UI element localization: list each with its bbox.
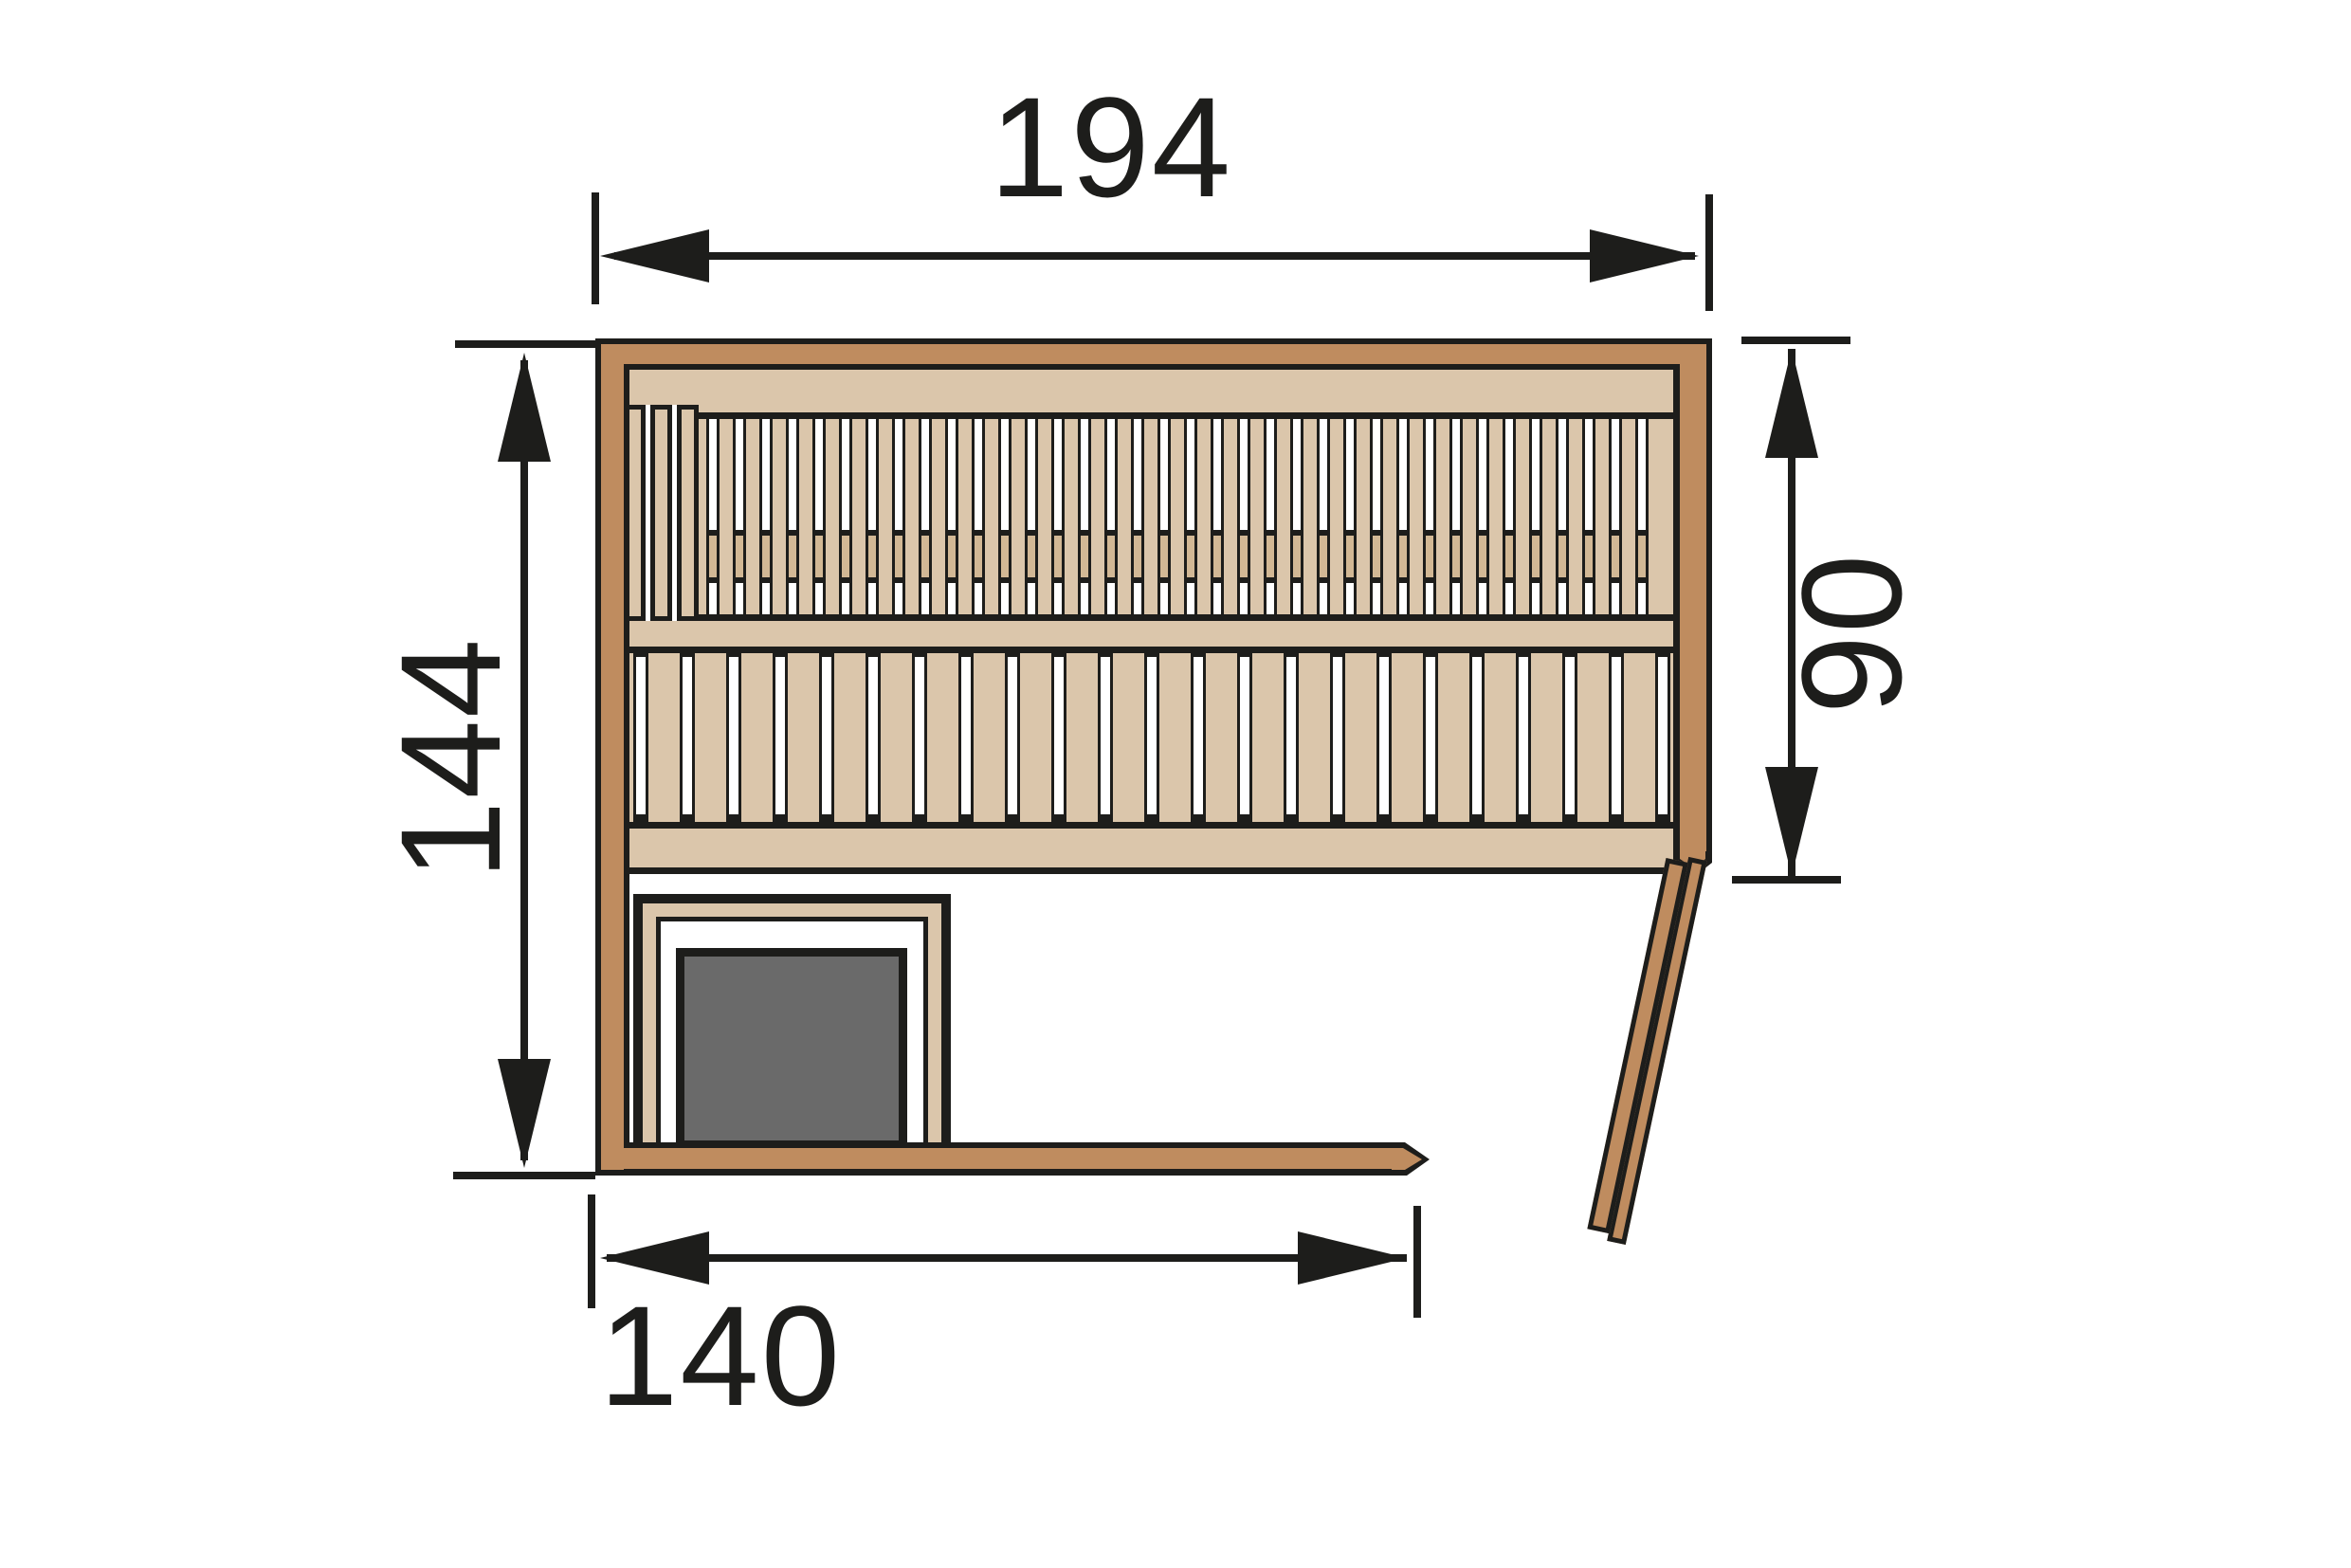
- upper-slat-slot: [1449, 419, 1463, 614]
- slot-support: [1160, 530, 1168, 583]
- slot-gap: [842, 419, 849, 614]
- slot-support: [975, 530, 982, 583]
- dim-arrow-down: [498, 1059, 551, 1168]
- slot-gap: [1452, 419, 1460, 614]
- slot-gap: [775, 657, 785, 814]
- lower-slat-slot: [1516, 653, 1531, 822]
- bench-board: [650, 405, 672, 621]
- slot-gap: [1134, 419, 1141, 614]
- slot-gap: [1346, 419, 1354, 614]
- upper-slat-slot: [812, 419, 826, 614]
- slot-support: [1479, 530, 1486, 583]
- lower-slat-slot: [866, 653, 881, 822]
- upper-slat-slot: [1343, 419, 1357, 614]
- lower-slat-slot: [958, 653, 974, 822]
- slot-support: [1028, 530, 1035, 583]
- slot-support: [1107, 530, 1115, 583]
- upper-slat-slot: [1423, 419, 1436, 614]
- slot-support: [1240, 530, 1248, 583]
- slot-support: [868, 530, 876, 583]
- slot-gap: [1565, 657, 1575, 814]
- slot-gap: [1054, 419, 1062, 614]
- upper-slat-slot: [1503, 419, 1516, 614]
- slot-support: [1452, 530, 1460, 583]
- slot-support: [1373, 530, 1380, 583]
- slot-gap: [1293, 419, 1301, 614]
- dim-label-top: 194: [969, 66, 1253, 228]
- slot-gap: [895, 419, 902, 614]
- lower-slat-slot: [1051, 653, 1066, 822]
- upper-slat-slot: [1370, 419, 1383, 614]
- bench-board: [677, 405, 699, 621]
- slot-gap: [1160, 419, 1168, 614]
- lower-slat-slot: [1609, 653, 1624, 822]
- dim-arrow-right: [1298, 1231, 1407, 1285]
- slot-support: [1426, 530, 1433, 583]
- slot-gap: [1426, 657, 1435, 814]
- slot-support: [921, 530, 929, 583]
- slot-gap: [1558, 419, 1566, 614]
- lower-slat-slot: [1423, 653, 1438, 822]
- lower-slat-slot: [1469, 653, 1485, 822]
- slot-gap: [1612, 657, 1621, 814]
- slot-gap: [1426, 419, 1433, 614]
- slot-gap: [1001, 419, 1009, 614]
- bench-front-rail: [611, 829, 1673, 867]
- lower-slat-slot: [633, 653, 648, 822]
- upper-slat-slot: [1104, 419, 1118, 614]
- slot-gap: [1147, 657, 1157, 814]
- dim-ext-line: [455, 340, 597, 348]
- lower-slat-slot: [680, 653, 695, 822]
- slot-gap: [729, 657, 738, 814]
- lower-slat-slot: [773, 653, 788, 822]
- slot-support: [1081, 530, 1088, 583]
- lower-slat-slot: [1005, 653, 1020, 822]
- lower-slat-slot: [1655, 653, 1670, 822]
- slot-gap: [736, 419, 743, 614]
- slot-support: [1399, 530, 1407, 583]
- slot-gap: [822, 657, 831, 814]
- dim-arrow-up: [498, 353, 551, 462]
- dim-ext-line: [592, 192, 599, 304]
- bench-line: [611, 867, 1673, 874]
- slot-support: [948, 530, 956, 583]
- dim-ext-line: [1705, 194, 1713, 311]
- slot-support: [1187, 530, 1194, 583]
- slot-gap: [1101, 657, 1110, 814]
- slot-gap: [1008, 657, 1017, 814]
- slot-support: [1320, 530, 1327, 583]
- upper-slat-slot: [998, 419, 1011, 614]
- upper-slat-slot: [1635, 419, 1649, 614]
- bench-top-rail: [611, 370, 1673, 412]
- lower-slat-slot: [912, 653, 927, 822]
- bench-mid-rail: [611, 621, 1673, 647]
- slot-gap: [1519, 657, 1528, 814]
- slot-gap: [1585, 419, 1593, 614]
- lower-slat-slot: [819, 653, 834, 822]
- slot-gap: [1379, 657, 1389, 814]
- dim-ext-line: [1741, 337, 1850, 344]
- dim-line-bottom: [607, 1254, 1407, 1262]
- bench-line: [611, 614, 1673, 621]
- slot-gap: [1320, 419, 1327, 614]
- slot-gap: [815, 419, 823, 614]
- dim-ext-line: [1732, 876, 1841, 884]
- dim-line-top: [614, 252, 1695, 260]
- lower-slat-slot: [1191, 653, 1206, 822]
- slot-support: [842, 530, 849, 583]
- left-wall-wood: [601, 344, 624, 1170]
- upper-slat-slot: [892, 419, 905, 614]
- slot-support: [1267, 530, 1274, 583]
- upper-slat-slot: [972, 419, 985, 614]
- upper-slat-slot: [945, 419, 958, 614]
- slot-gap: [1187, 419, 1194, 614]
- dim-ext-line: [1413, 1206, 1421, 1318]
- slot-gap: [921, 419, 929, 614]
- slot-gap: [789, 419, 796, 614]
- upper-slat-slot: [1237, 419, 1250, 614]
- slot-support: [1532, 530, 1540, 583]
- lower-slat-slot: [1237, 653, 1252, 822]
- slot-gap: [1479, 419, 1486, 614]
- dim-label-bottom: 140: [578, 1275, 863, 1436]
- upper-slat-slot: [1609, 419, 1622, 614]
- upper-slat-slot: [919, 419, 932, 614]
- slot-gap: [1054, 657, 1064, 814]
- slot-gap: [636, 657, 646, 814]
- bench-line: [611, 822, 1673, 829]
- upper-slat-slot: [1317, 419, 1330, 614]
- slot-gap: [1333, 657, 1342, 814]
- upper-slat-slot: [1025, 419, 1038, 614]
- slot-support: [1505, 530, 1513, 583]
- sauna-floor-plan: 194 144 90 140: [0, 0, 2351, 1568]
- slot-support: [1346, 530, 1354, 583]
- slot-support: [762, 530, 770, 583]
- slot-gap: [1658, 657, 1668, 814]
- slot-support: [1213, 530, 1221, 583]
- lower-slat-slot: [1330, 653, 1345, 822]
- upper-slat-slot: [1051, 419, 1065, 614]
- top-wall-wood: [601, 344, 1706, 364]
- upper-slat-slot: [1184, 419, 1197, 614]
- upper-slat-slot: [1264, 419, 1277, 614]
- slot-gap: [1240, 657, 1249, 814]
- heater: [684, 957, 899, 1140]
- slot-gap: [1638, 419, 1646, 614]
- dim-arrow-right: [1590, 229, 1699, 283]
- slot-gap: [709, 419, 717, 614]
- lower-slat-slot: [726, 653, 741, 822]
- upper-slat-slot: [1211, 419, 1224, 614]
- bench-line: [611, 647, 1673, 653]
- slot-gap: [1194, 657, 1203, 814]
- lower-slat-slot: [1144, 653, 1159, 822]
- slot-support: [1054, 530, 1062, 583]
- slot-gap: [868, 657, 878, 814]
- lower-slat-slot: [1562, 653, 1577, 822]
- slot-support: [1293, 530, 1301, 583]
- dim-label-right: 90: [1771, 524, 1932, 742]
- dim-arrow-up: [1765, 349, 1818, 458]
- upper-slat-slot: [1476, 419, 1489, 614]
- slot-gap: [762, 419, 770, 614]
- slot-support: [815, 530, 823, 583]
- slot-gap: [1286, 657, 1296, 814]
- slot-gap: [1532, 419, 1540, 614]
- slot-gap: [1373, 419, 1380, 614]
- slot-support: [1558, 530, 1566, 583]
- upper-slat-slot: [759, 419, 773, 614]
- slot-support: [1585, 530, 1593, 583]
- slot-gap: [1107, 419, 1115, 614]
- slot-support: [1001, 530, 1009, 583]
- slot-support: [789, 530, 796, 583]
- lower-slat-slot: [1376, 653, 1392, 822]
- slot-gap: [1081, 419, 1088, 614]
- upper-slat-slot: [866, 419, 879, 614]
- slot-gap: [915, 657, 924, 814]
- slot-gap: [1399, 419, 1407, 614]
- slot-gap: [1612, 419, 1619, 614]
- dim-ext-line: [453, 1172, 595, 1179]
- slot-gap: [868, 419, 876, 614]
- upper-slat-slot: [1078, 419, 1091, 614]
- dim-arrow-down: [1765, 767, 1818, 876]
- lower-slat-slot: [1284, 653, 1299, 822]
- upper-slat-slot: [1396, 419, 1410, 614]
- bottom-wall-wood: [601, 1148, 1403, 1169]
- upper-slat-slot: [1157, 419, 1171, 614]
- slot-support: [736, 530, 743, 583]
- upper-slat-slot: [1582, 419, 1595, 614]
- slot-support: [1612, 530, 1619, 583]
- slot-gap: [1472, 657, 1482, 814]
- slot-support: [1134, 530, 1141, 583]
- slot-gap: [683, 657, 692, 814]
- slot-gap: [1267, 419, 1274, 614]
- slot-support: [709, 530, 717, 583]
- slot-gap: [961, 657, 971, 814]
- dim-arrow-left: [600, 229, 709, 283]
- slot-gap: [975, 419, 982, 614]
- right-wall-wood: [1680, 344, 1706, 855]
- slot-gap: [1213, 419, 1221, 614]
- lower-bench-panel: [611, 653, 1673, 822]
- slot-gap: [948, 419, 956, 614]
- slot-gap: [1028, 419, 1035, 614]
- upper-slat-slot: [1290, 419, 1303, 614]
- upper-slat-slot: [1131, 419, 1144, 614]
- upper-slat-slot: [1556, 419, 1569, 614]
- bench-line: [611, 412, 1673, 419]
- slot-gap: [1505, 419, 1513, 614]
- lower-slat-slot: [1098, 653, 1113, 822]
- slot-support: [1638, 530, 1646, 583]
- slot-support: [895, 530, 902, 583]
- dim-label-left: 144: [370, 602, 531, 915]
- upper-slat-slot: [733, 419, 746, 614]
- upper-slat-slot: [839, 419, 852, 614]
- upper-slat-slot: [706, 419, 720, 614]
- upper-slat-slot: [786, 419, 799, 614]
- upper-slat-slot: [1529, 419, 1542, 614]
- slot-gap: [1240, 419, 1248, 614]
